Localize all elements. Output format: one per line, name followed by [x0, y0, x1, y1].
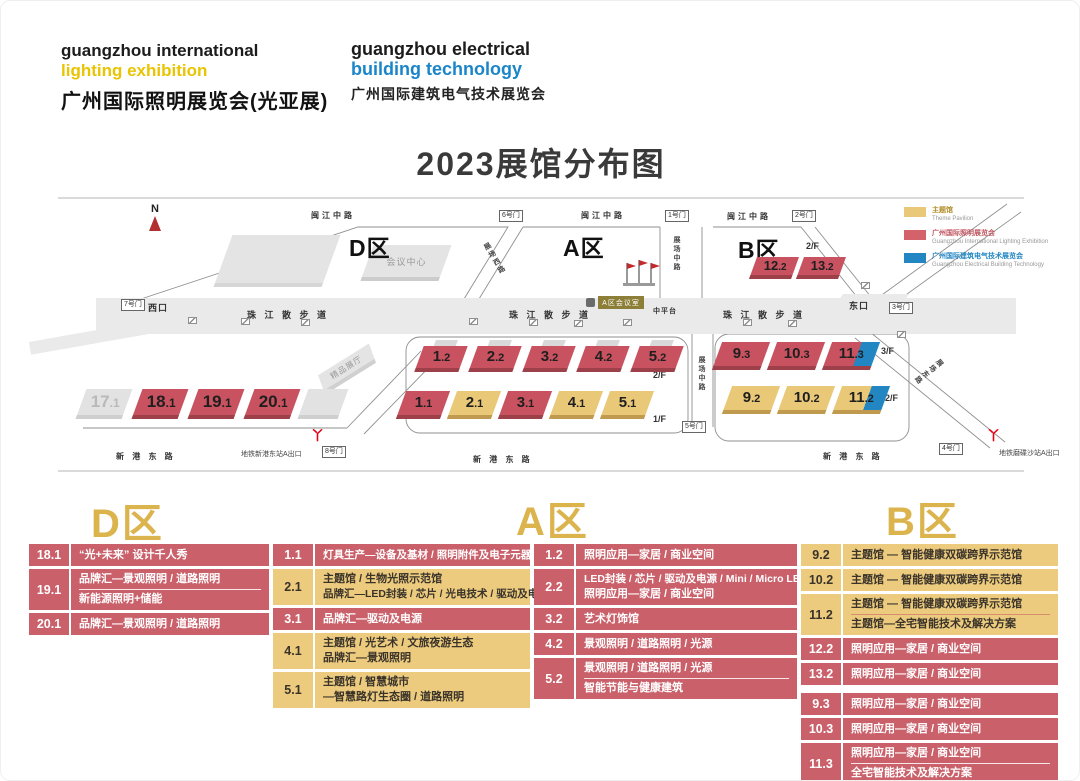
row-line: —智慧路灯生态圈 / 道路照明 [323, 690, 522, 705]
hall-number: 2.1 [273, 569, 313, 605]
row-line: 照明应用—家居 / 商业空间 [851, 746, 1050, 761]
map-zone-a-label: A区 [563, 229, 605, 263]
hall-number: 13.2 [801, 663, 841, 685]
row-line: 主题馆 — 智能健康双碳跨界示范馆 [851, 548, 1050, 563]
logo-lighting-exhibition: guangzhou international lighting exhibit… [61, 41, 328, 114]
hall-number: 1.1 [273, 544, 313, 566]
legend-row-lighting: 广州国际照明展览会 Guangzhou International Lighti… [904, 229, 1048, 246]
hall-number: 3.1 [273, 608, 313, 630]
floor-label-3f-b: 3/F [881, 346, 894, 356]
metro-icon-right: 丫 [987, 429, 1000, 442]
row-line: 照明应用—家居 / 商业空间 [851, 667, 1050, 682]
logo-right-en1: guangzhou electrical [351, 39, 546, 59]
table-row-1.2: 1.2 照明应用—家居 / 商业空间 [534, 544, 797, 566]
logo-right-en2: building technology [351, 59, 546, 79]
escalator-icon [241, 318, 250, 325]
hall-3.1: 3.1 [498, 391, 552, 419]
legend-row-electrical: 广州国际建筑电气技术展览会 Guangzhou Electrical Build… [904, 252, 1048, 269]
hall-9.2: 9.2 [722, 386, 780, 414]
legend-label: 广州国际照明展览会 [932, 229, 1048, 238]
hall-number: 4.1 [273, 633, 313, 669]
road-zhanchang-zhong-upper: 展场中路 [671, 236, 681, 272]
road-zhujiang-1: 珠 江 散 步 道 [247, 308, 329, 321]
escalator-icon [897, 331, 906, 338]
table-row-2.1: 2.1 主题馆 / 生物光照示范馆 品牌汇—LED封装 / 芯片 / 光电技术 … [273, 569, 530, 605]
row-line: 新能源照明+储能 [79, 589, 261, 607]
people-icon [586, 298, 595, 307]
table-row-5.2: 5.2 景观照明 / 道路照明 / 光源 智能节能与健康建筑 [534, 658, 797, 699]
row-line: 艺术灯饰馆 [584, 612, 789, 627]
gate-3: 3号门 [889, 302, 913, 314]
logo-electrical-building: guangzhou electrical building technology… [351, 39, 546, 104]
hall-4.1: 4.1 [549, 391, 603, 419]
exhibition-floor-map-poster: guangzhou international lighting exhibit… [0, 0, 1080, 781]
row-line: 品牌汇—LED封装 / 芯片 / 光电技术 / 驱动及电源 [323, 587, 549, 602]
row-line: 主题馆—全宅智能技术及解决方案 [851, 614, 1050, 632]
hall-number: 3.2 [534, 608, 574, 630]
hall-number: 11.2 [801, 594, 841, 635]
row-line: 主题馆 / 智慧城市 [323, 675, 522, 690]
table-row-11.2: 11.2 主题馆 — 智能健康双碳跨界示范馆 主题馆—全宅智能技术及解决方案 [801, 594, 1058, 635]
hall-number: 10.3 [801, 718, 841, 740]
west-plaza [29, 320, 154, 355]
hall-number: 20.1 [29, 613, 69, 635]
row-line: 主题馆 / 光艺术 / 文旅夜游生态 [323, 636, 522, 651]
row-line: 品牌汇—景观照明 [323, 651, 522, 666]
boutique-hall-building: 精品展厅 [318, 343, 376, 394]
map-zone-d-label: D区 [349, 229, 391, 263]
hall-20.1: 20.1 [244, 389, 301, 419]
row-line: 主题馆 — 智能健康双碳跨界示范馆 [851, 573, 1050, 588]
zone-title-d: D区 [91, 491, 164, 549]
metro-xingangdong-label: 地铁新港东站A出口 [241, 449, 302, 459]
road-minjiang-3: 闽江中路 [727, 211, 771, 222]
floor-label-1f-a: 1/F [653, 414, 666, 424]
legend-swatch-lighting [904, 230, 926, 240]
table-row-10.2: 10.2 主题馆 — 智能健康双碳跨界示范馆 [801, 569, 1058, 591]
escalator-icon [188, 317, 197, 324]
hall-9.3: 9.3 [712, 342, 770, 370]
gate-5: 5号门 [682, 421, 706, 433]
hall-number: 10.2 [801, 569, 841, 591]
flags-icon [623, 260, 660, 286]
legend-label: 广州国际建筑电气技术展览会 [932, 252, 1044, 261]
row-line: 智能节能与健康建筑 [584, 678, 789, 696]
hall-13.2: 13.2 [796, 257, 846, 279]
table-row-19.1: 19.1 品牌汇—景观照明 / 道路照明 新能源照明+储能 [29, 569, 269, 610]
gate-1: 1号门 [665, 210, 689, 222]
row-line: 景观照明 / 道路照明 / 光源 [584, 637, 789, 652]
hall-10.2: 10.2 [777, 386, 835, 414]
legend-row-theme: 主题馆 Theme Pavilion [904, 206, 1048, 223]
zone-title-b: B区 [886, 489, 959, 547]
west-entrance-label: 西口 [148, 301, 168, 314]
road-minjiang-2: 闽江中路 [581, 210, 625, 221]
hall-10.3: 10.3 [767, 342, 825, 370]
metro-modiesha-label: 地铁磨碟沙站A出口 [999, 448, 1060, 458]
table-row-10.3: 10.3 照明应用—家居 / 商业空间 [801, 718, 1058, 740]
legend-label-en: Guangzhou Electrical Building Technology [932, 261, 1044, 269]
row-line: “光+未来” 设计千人秀 [79, 548, 261, 563]
hall-12.2: 12.2 [749, 257, 799, 279]
gate-2: 2号门 [792, 210, 816, 222]
hall-1.1: 1.1 [396, 391, 450, 419]
mid-platform-label: 中平台 [653, 306, 677, 316]
hall-unlabeled [298, 389, 349, 419]
hall-number: 5.1 [273, 672, 313, 708]
logo-left-en2: lighting exhibition [61, 61, 328, 81]
conference-center-label: 会议中心 [387, 255, 427, 268]
table-row-11.3: 11.3 照明应用—家居 / 商业空间 全宅智能技术及解决方案 [801, 743, 1058, 781]
hall-11.3: 11.3 [822, 342, 880, 370]
boutique-hall-label: 精品展厅 [328, 353, 364, 381]
hall-number: 12.2 [801, 638, 841, 660]
gate-6: 6号门 [499, 210, 523, 222]
table-row-1.1: 1.1 灯具生产—设备及基材 / 照明附件及电子元器件 [273, 544, 530, 566]
table-row-12.2: 12.2 照明应用—家居 / 商业空间 [801, 638, 1058, 660]
row-line: 景观照明 / 道路照明 / 光源 [584, 661, 789, 676]
row-line: 主题馆 — 智能健康双碳跨界示范馆 [851, 597, 1050, 612]
east-entrance-label: 东口 [849, 299, 869, 312]
road-xingang-3: 新 港 东 路 [823, 451, 883, 462]
hall-17.1: 17.1 [76, 389, 133, 419]
table-row-3.1: 3.1 品牌汇—驱动及电源 [273, 608, 530, 630]
hall-2.1: 2.1 [447, 391, 501, 419]
legend-swatch-theme [904, 207, 926, 217]
legend: 主题馆 Theme Pavilion 广州国际照明展览会 Guangzhou I… [904, 206, 1048, 275]
row-line: 品牌汇—景观照明 / 道路照明 [79, 617, 261, 632]
hall-number: 9.2 [801, 544, 841, 566]
hall-number: 19.1 [29, 569, 69, 610]
north-arrow-icon: N [149, 203, 161, 231]
escalator-icon [301, 319, 310, 326]
table-zone-a-right: 1.2 照明应用—家居 / 商业空间 2.2 LED封装 / 芯片 / 驱动及电… [534, 544, 797, 702]
gate-4: 4号门 [939, 443, 963, 455]
escalator-icon [469, 318, 478, 325]
row-line: LED封装 / 芯片 / 驱动及电源 / Mini / Micro LED [584, 572, 807, 587]
table-zone-a-left: 1.1 灯具生产—设备及基材 / 照明附件及电子元器件 2.1 主题馆 / 生物… [273, 544, 530, 711]
row-line: 照明应用—家居 / 商业空间 [851, 642, 1050, 657]
hall-number: 2.2 [534, 569, 574, 605]
escalator-icon [788, 320, 797, 327]
table-row-2.2: 2.2 LED封装 / 芯片 / 驱动及电源 / Mini / Micro LE… [534, 569, 797, 605]
table-row-4.1: 4.1 主题馆 / 光艺术 / 文旅夜游生态 品牌汇—景观照明 [273, 633, 530, 669]
escalator-icon [743, 319, 752, 326]
row-line: 主题馆 / 生物光照示范馆 [323, 572, 549, 587]
table-row-4.2: 4.2 景观照明 / 道路照明 / 光源 [534, 633, 797, 655]
table-zone-d: 18.1 “光+未来” 设计千人秀 19.1 品牌汇—景观照明 / 道路照明 新… [29, 544, 269, 638]
logo-left-en1: guangzhou international [61, 41, 328, 61]
hall-3.2: 3.2 [522, 346, 575, 372]
gate-7: 7号门 [121, 299, 145, 311]
hall-number: 11.3 [801, 743, 841, 781]
hall-number: 5.2 [534, 658, 574, 699]
hall-number: 4.2 [534, 633, 574, 655]
row-line: 照明应用—家居 / 商业空间 [584, 548, 789, 563]
table-zone-b: 9.2 主题馆 — 智能健康双碳跨界示范馆 10.2 主题馆 — 智能健康双碳跨… [801, 544, 1058, 781]
road-minjiang-1: 闽江中路 [311, 210, 355, 221]
hall-1.2: 1.2 [414, 346, 467, 372]
table-row-9.3: 9.3 照明应用—家居 / 商业空间 [801, 693, 1058, 715]
hall-19.1: 19.1 [188, 389, 245, 419]
row-line: 照明应用—家居 / 商业空间 [584, 587, 807, 602]
table-row-20.1: 20.1 品牌汇—景观照明 / 道路照明 [29, 613, 269, 635]
escalator-icon [529, 319, 538, 326]
legend-label: 主题馆 [932, 206, 973, 215]
logo-right-cn: 广州国际建筑电气技术展览会 [351, 84, 546, 104]
legend-label-en: Guangzhou International Lighting Exhibit… [932, 238, 1048, 246]
hall-number: 9.3 [801, 693, 841, 715]
legend-label-en: Theme Pavilion [932, 215, 973, 223]
road-zhanchang-xi: 展场西路 [480, 241, 507, 277]
row-line: 照明应用—家居 / 商业空间 [851, 722, 1050, 737]
hall-5.2: 5.2 [630, 346, 683, 372]
logo-left-cn: 广州国际照明展览会(光亚展) [61, 85, 328, 114]
hall-5.1: 5.1 [600, 391, 654, 419]
escalator-icon [623, 319, 632, 326]
zone-title-a: A区 [516, 489, 589, 547]
table-row-3.2: 3.2 艺术灯饰馆 [534, 608, 797, 630]
row-line: 灯具生产—设备及基材 / 照明附件及电子元器件 [323, 548, 542, 563]
table-row-5.1: 5.1 主题馆 / 智慧城市 —智慧路灯生态圈 / 道路照明 [273, 672, 530, 708]
escalator-icon [861, 282, 870, 289]
road-zhanchang-zhong-lower: 展场中路 [696, 356, 706, 392]
row-line: 品牌汇—驱动及电源 [323, 612, 522, 627]
gate-8: 8号门 [322, 446, 346, 458]
row-line: 照明应用—家居 / 商业空间 [851, 697, 1050, 712]
table-row-9.2: 9.2 主题馆 — 智能健康双碳跨界示范馆 [801, 544, 1058, 566]
table-row-13.2: 13.2 照明应用—家居 / 商业空间 [801, 663, 1058, 685]
hall-2.2: 2.2 [468, 346, 521, 372]
a-meeting-room: A区会议室 [598, 296, 644, 309]
legend-swatch-electrical [904, 253, 926, 263]
table-row-18.1: 18.1 “光+未来” 设计千人秀 [29, 544, 269, 566]
hall-4.2: 4.2 [576, 346, 629, 372]
escalator-icon [574, 320, 583, 327]
hall-number: 18.1 [29, 544, 69, 566]
road-xingang-2: 新 港 东 路 [473, 454, 533, 465]
row-line: 全宅智能技术及解决方案 [851, 763, 1050, 781]
road-zhanchang-dong: 展场东路 [911, 356, 945, 386]
floor-label-2f-b-top: 2/F [806, 241, 819, 251]
north-label: N [149, 203, 161, 215]
page-title: 2023展馆分布图 [1, 139, 1080, 185]
hall-number: 1.2 [534, 544, 574, 566]
hall-11.2: 11.2 [832, 386, 890, 414]
row-line: 品牌汇—景观照明 / 道路照明 [79, 572, 261, 587]
metro-icon-left: 丫 [311, 429, 324, 442]
road-xingang-1: 新 港 东 路 [116, 451, 176, 462]
d-zone-hall-building [214, 235, 341, 287]
hall-18.1: 18.1 [132, 389, 189, 419]
